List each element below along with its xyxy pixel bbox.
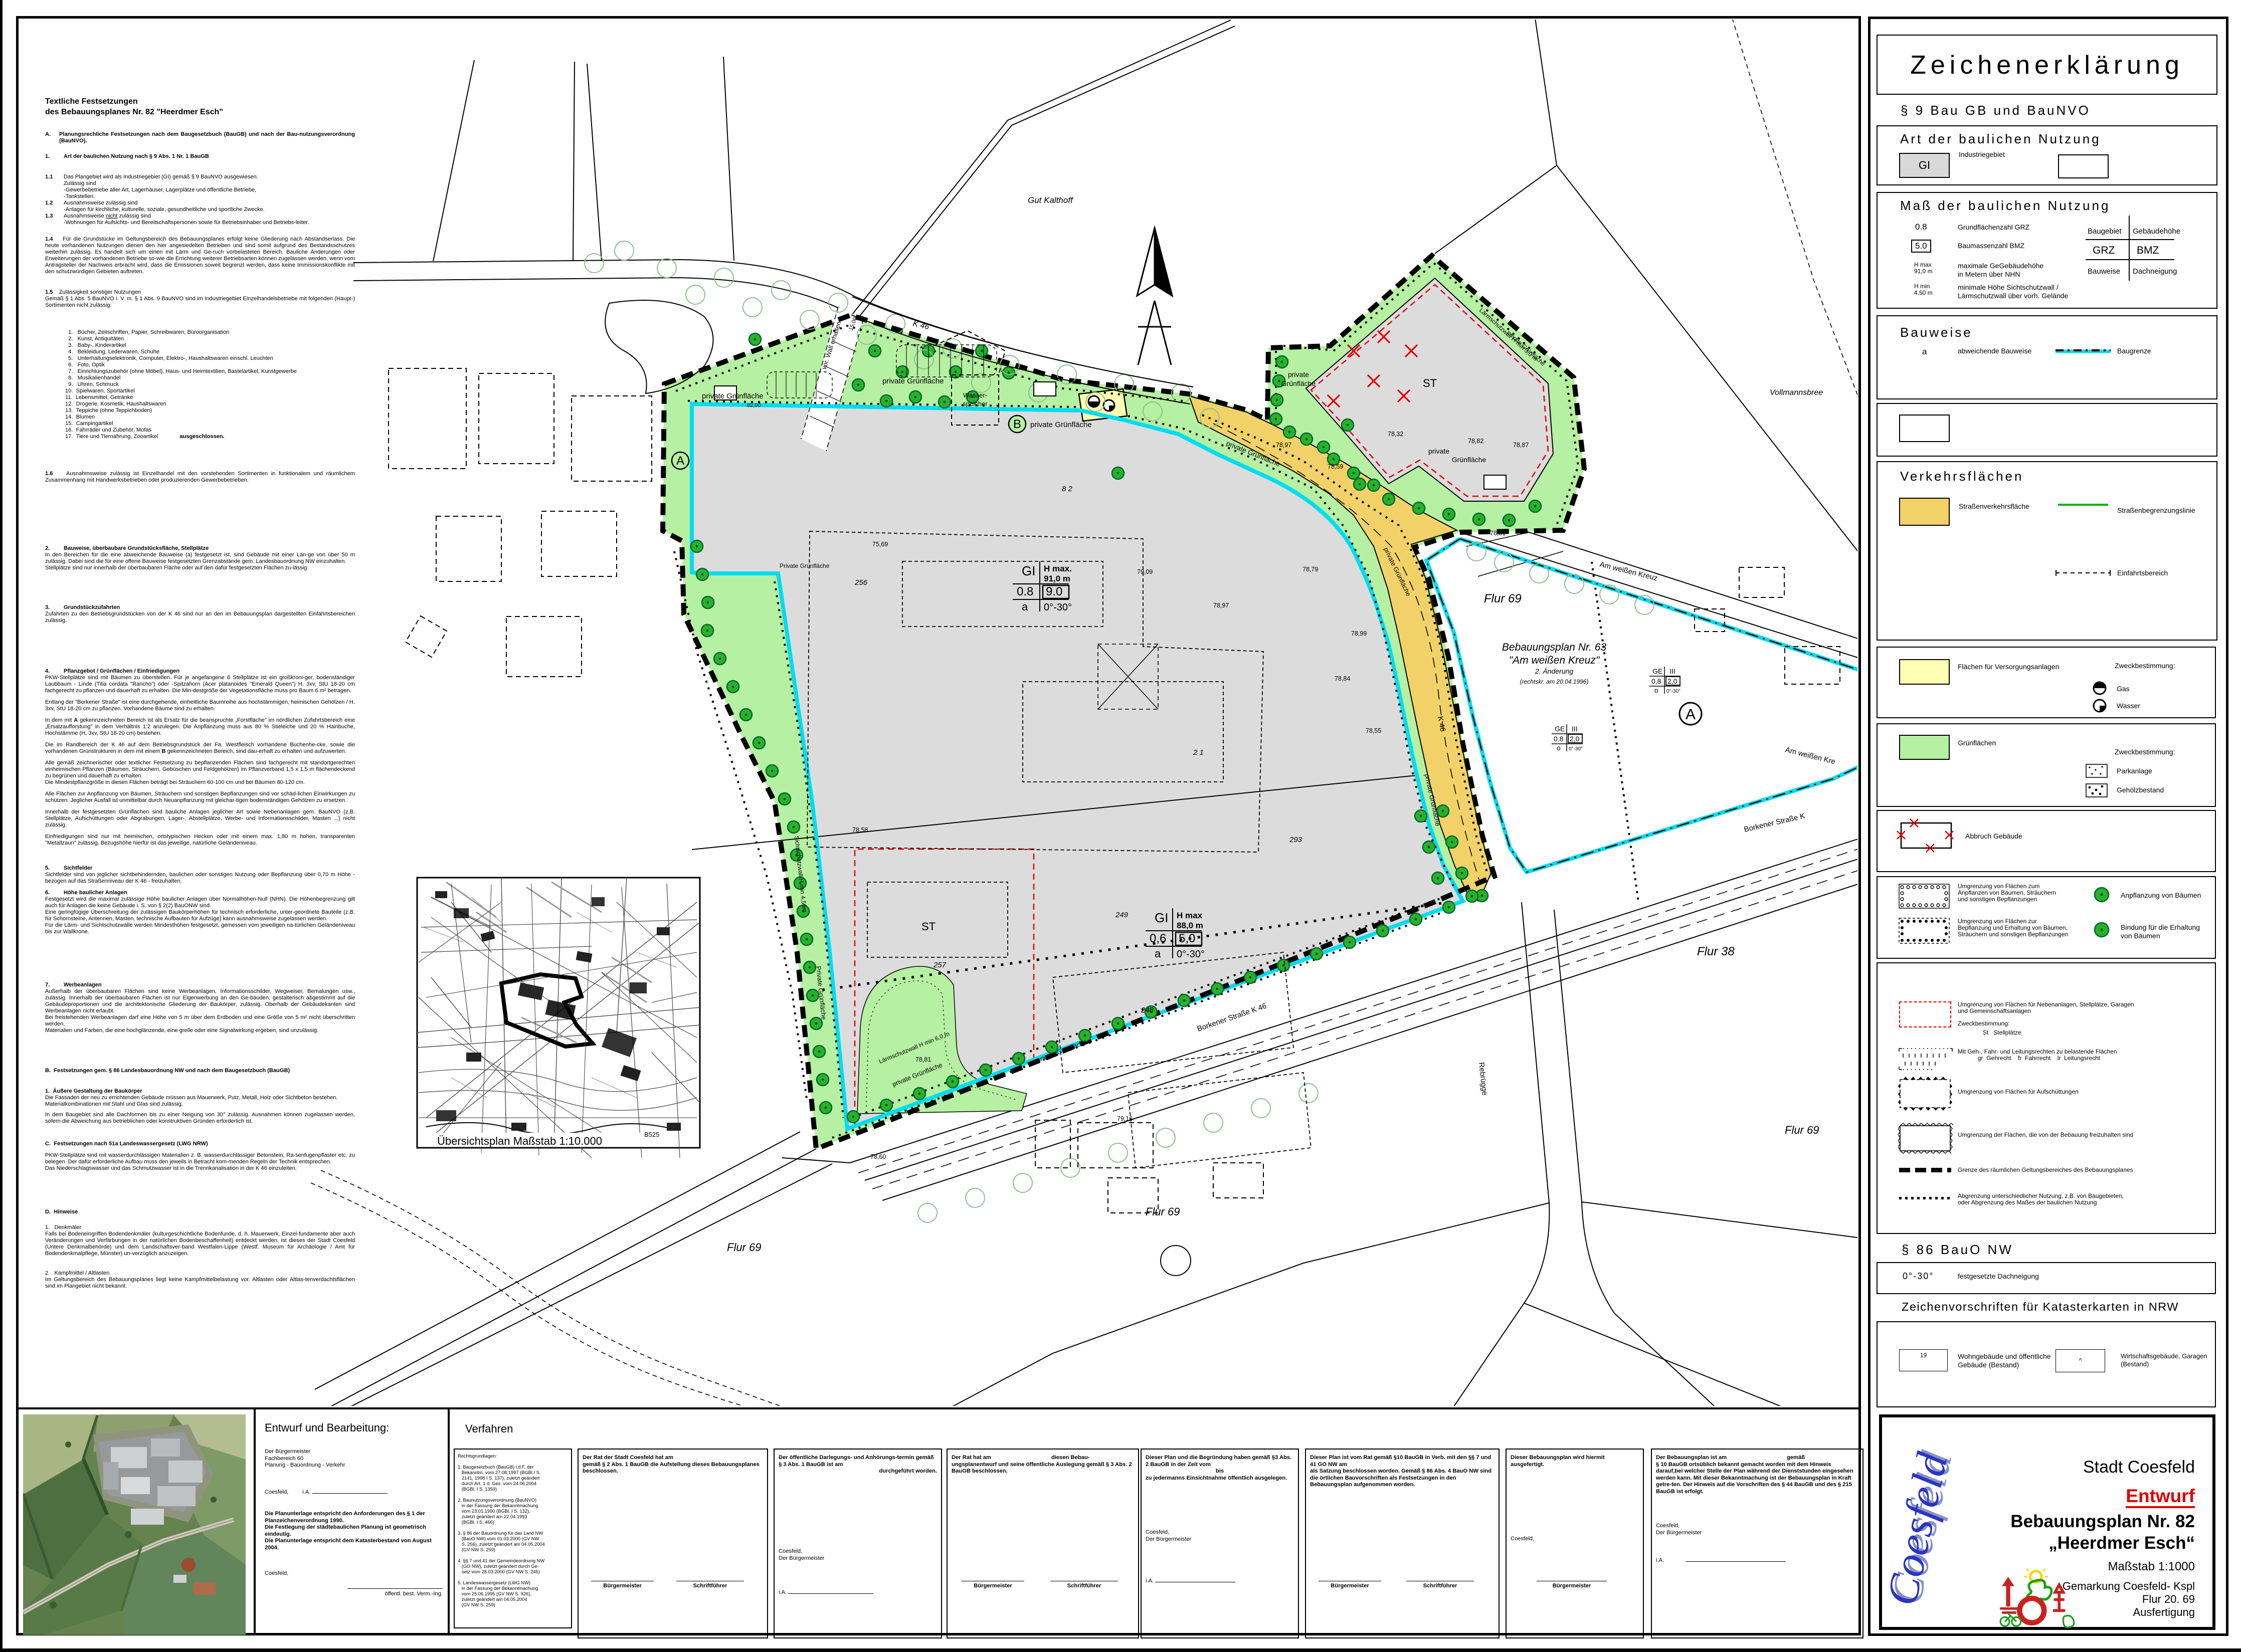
svg-text:Private Grünfläche: Private Grünfläche — [780, 562, 830, 569]
svg-text:GE: GE — [1555, 725, 1565, 733]
svg-text:5,0: 5,0 — [1179, 932, 1195, 945]
svg-text:2 1: 2 1 — [1193, 748, 1204, 757]
svg-text:0°-30°: 0°-30° — [1044, 602, 1072, 613]
svg-text:78,97: 78,97 — [1213, 602, 1229, 609]
svg-text:Grünfläche: Grünfläche — [1452, 456, 1486, 464]
svg-text:o: o — [1557, 744, 1561, 752]
svg-text:III: III — [1669, 667, 1675, 675]
svg-text:0.8: 0.8 — [1017, 585, 1033, 598]
svg-text:8 2: 8 2 — [1062, 485, 1073, 493]
svg-text:B525: B525 — [644, 1131, 659, 1138]
svg-text:Flur 38: Flur 38 — [1697, 945, 1735, 958]
svg-text:Flur 69: Flur 69 — [727, 1241, 761, 1254]
svg-text:78,55: 78,55 — [1366, 727, 1381, 734]
svg-text:III: III — [1572, 725, 1578, 733]
svg-text:78,01: 78,01 — [1490, 530, 1506, 537]
svg-text:91,0 m: 91,0 m — [1044, 574, 1070, 583]
svg-text:GRZ: GRZ — [2093, 245, 2115, 256]
svg-text:78,81: 78,81 — [915, 1056, 931, 1063]
svg-text:a: a — [1022, 600, 1028, 613]
svg-text:79,09: 79,09 — [1137, 568, 1153, 575]
svg-text:0°-30°: 0°-30° — [1177, 949, 1205, 960]
svg-text:78,87: 78,87 — [1513, 442, 1529, 449]
svg-text:75,69: 75,69 — [872, 541, 888, 548]
svg-text:(rechtskr. am 20.04.1996): (rechtskr. am 20.04.1996) — [1520, 678, 1589, 685]
svg-text:ST: ST — [1423, 377, 1437, 389]
svg-text:A: A — [676, 454, 684, 468]
svg-text:BMZ: BMZ — [2137, 245, 2159, 256]
svg-text:78,59: 78,59 — [1328, 463, 1343, 470]
svg-text:Vollmannsbree: Vollmannsbree — [1770, 388, 1823, 397]
svg-text:Rebrügge: Rebrügge — [1477, 1062, 1489, 1096]
svg-text:Bebauungsplan Nr. 63: Bebauungsplan Nr. 63 — [1502, 642, 1607, 653]
svg-text:H max: H max — [1177, 911, 1203, 920]
svg-text:Am weißen Kre: Am weißen Kre — [1784, 745, 1836, 766]
svg-text:B: B — [1013, 418, 1021, 431]
svg-text:o: o — [1654, 686, 1658, 694]
svg-text:78,32: 78,32 — [1388, 431, 1403, 438]
svg-text:0,8: 0,8 — [1554, 735, 1564, 743]
svg-text:Gut Kalthoff: Gut Kalthoff — [1028, 195, 1074, 205]
svg-text:9.0: 9.0 — [1046, 585, 1062, 598]
svg-text:256: 256 — [854, 578, 868, 587]
svg-text:GI: GI — [1022, 563, 1035, 578]
svg-text:speicher: speicher — [963, 400, 988, 407]
svg-text:ST: ST — [921, 920, 936, 933]
svg-text:Coesfeld: Coesfeld — [1885, 1448, 1957, 1609]
svg-text:Flur 69: Flur 69 — [1146, 1205, 1180, 1218]
svg-text:78,82: 78,82 — [1468, 438, 1483, 445]
svg-text:257: 257 — [933, 961, 947, 969]
svg-text:0,6: 0,6 — [1150, 932, 1166, 945]
svg-text:0,8: 0,8 — [1651, 677, 1661, 685]
svg-text:private Grünfläche: private Grünfläche — [882, 377, 944, 385]
svg-text:Grünfläche: Grünfläche — [1281, 379, 1316, 387]
svg-text:Flur 69: Flur 69 — [1484, 592, 1522, 605]
svg-text:A: A — [1686, 706, 1696, 723]
svg-text:private: private — [1288, 370, 1309, 378]
svg-text:293: 293 — [1289, 836, 1302, 844]
svg-text:82,00: 82,00 — [747, 402, 761, 408]
svg-text:private Grünfläche: private Grünfläche — [1030, 421, 1092, 429]
svg-text:2,0: 2,0 — [1667, 677, 1677, 685]
svg-text:78,97: 78,97 — [1276, 442, 1291, 449]
svg-text:Wasser-: Wasser- — [963, 391, 987, 399]
svg-text:H max.: H max. — [1044, 564, 1072, 573]
svg-text:249: 249 — [1115, 911, 1129, 919]
svg-text:Bauweise: Bauweise — [2088, 267, 2120, 276]
svg-text:Flur 69: Flur 69 — [1785, 1124, 1819, 1136]
svg-text:Gebäudehöhe: Gebäudehöhe — [2133, 227, 2180, 236]
svg-text:private: private — [1428, 447, 1449, 455]
svg-text:78,99: 78,99 — [1351, 630, 1367, 637]
svg-text:0°-30°: 0°-30° — [1569, 746, 1583, 752]
svg-text:78,58: 78,58 — [852, 827, 868, 834]
svg-text:private Grünfläche: private Grünfläche — [702, 392, 764, 400]
svg-text:Borkener Straße K: Borkener Straße K — [1743, 811, 1806, 834]
svg-text:2. Änderung: 2. Änderung — [1535, 667, 1573, 675]
svg-text:79,16: 79,16 — [1117, 1115, 1133, 1122]
svg-text:Baugebiet: Baugebiet — [2088, 227, 2122, 236]
svg-text:88,0 m: 88,0 m — [1177, 921, 1203, 930]
svg-text:K 46: K 46 — [912, 319, 930, 331]
svg-text:2,0: 2,0 — [1570, 735, 1580, 743]
svg-text:GI: GI — [1155, 910, 1168, 925]
svg-text:248: 248 — [1141, 1006, 1154, 1014]
svg-text:Übersichtsplan Maßstab 1:10.0: Übersichtsplan Maßstab 1:10.000 — [437, 1135, 602, 1147]
svg-text:Borkener Straße K 46: Borkener Straße K 46 — [1196, 1001, 1268, 1033]
svg-text:Dachneigung: Dachneigung — [2133, 267, 2177, 276]
svg-text:78,79: 78,79 — [1302, 566, 1318, 573]
svg-text:0°-30°: 0°-30° — [1666, 689, 1680, 694]
svg-text:78,84: 78,84 — [1335, 675, 1350, 682]
svg-text:"Am weißen Kreuz": "Am weißen Kreuz" — [1509, 655, 1600, 666]
svg-text:78,60: 78,60 — [870, 1153, 886, 1160]
svg-text:GE: GE — [1652, 667, 1662, 675]
svg-text:a: a — [1155, 947, 1161, 960]
